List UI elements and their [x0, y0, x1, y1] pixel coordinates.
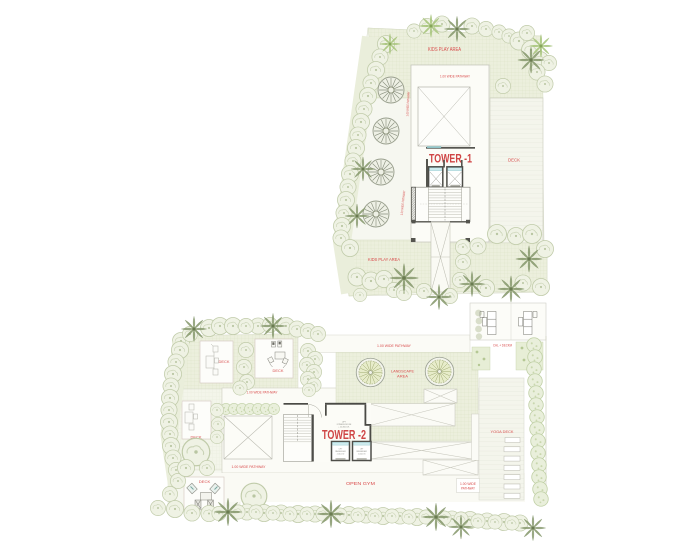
- svg-text:2.00x1.90: 2.00x1.90: [358, 453, 365, 455]
- svg-text:1.00 WIDE PATHWAY: 1.00 WIDE PATHWAY: [232, 464, 266, 469]
- svg-text:1.00 WIDE PATHWAY: 1.00 WIDE PATHWAY: [247, 391, 279, 395]
- svg-text:OPEN GYM: OPEN GYM: [346, 481, 375, 486]
- svg-text:DECK: DECK: [273, 368, 284, 373]
- svg-text:AREA: AREA: [397, 373, 408, 378]
- svg-text:DECK: DECK: [199, 479, 211, 484]
- svg-text:DECK: DECK: [219, 359, 230, 364]
- svg-text:1.00 WIDE: 1.00 WIDE: [460, 482, 477, 486]
- svg-text:TOWER -1: TOWER -1: [429, 151, 472, 165]
- svg-text:KIDS PLAY AREA: KIDS PLAY AREA: [428, 47, 461, 53]
- svg-text:1.00 WIDE PATHWAY: 1.00 WIDE PATHWAY: [440, 75, 470, 79]
- svg-text:CHL + DECKM: CHL + DECKM: [493, 343, 512, 347]
- svg-text:YOGA DECK: YOGA DECK: [491, 429, 514, 434]
- svg-text:2.00x1.90: 2.00x1.90: [337, 453, 344, 455]
- svg-text:KIDS PLAY AREA: KIDS PLAY AREA: [368, 257, 401, 262]
- svg-text:1.00 WIDE PATHWAY: 1.00 WIDE PATHWAY: [377, 343, 411, 348]
- svg-text:DECK: DECK: [508, 158, 520, 163]
- svg-text:TOWER -2: TOWER -2: [322, 428, 366, 442]
- svg-text:PATHWAY: PATHWAY: [461, 486, 476, 490]
